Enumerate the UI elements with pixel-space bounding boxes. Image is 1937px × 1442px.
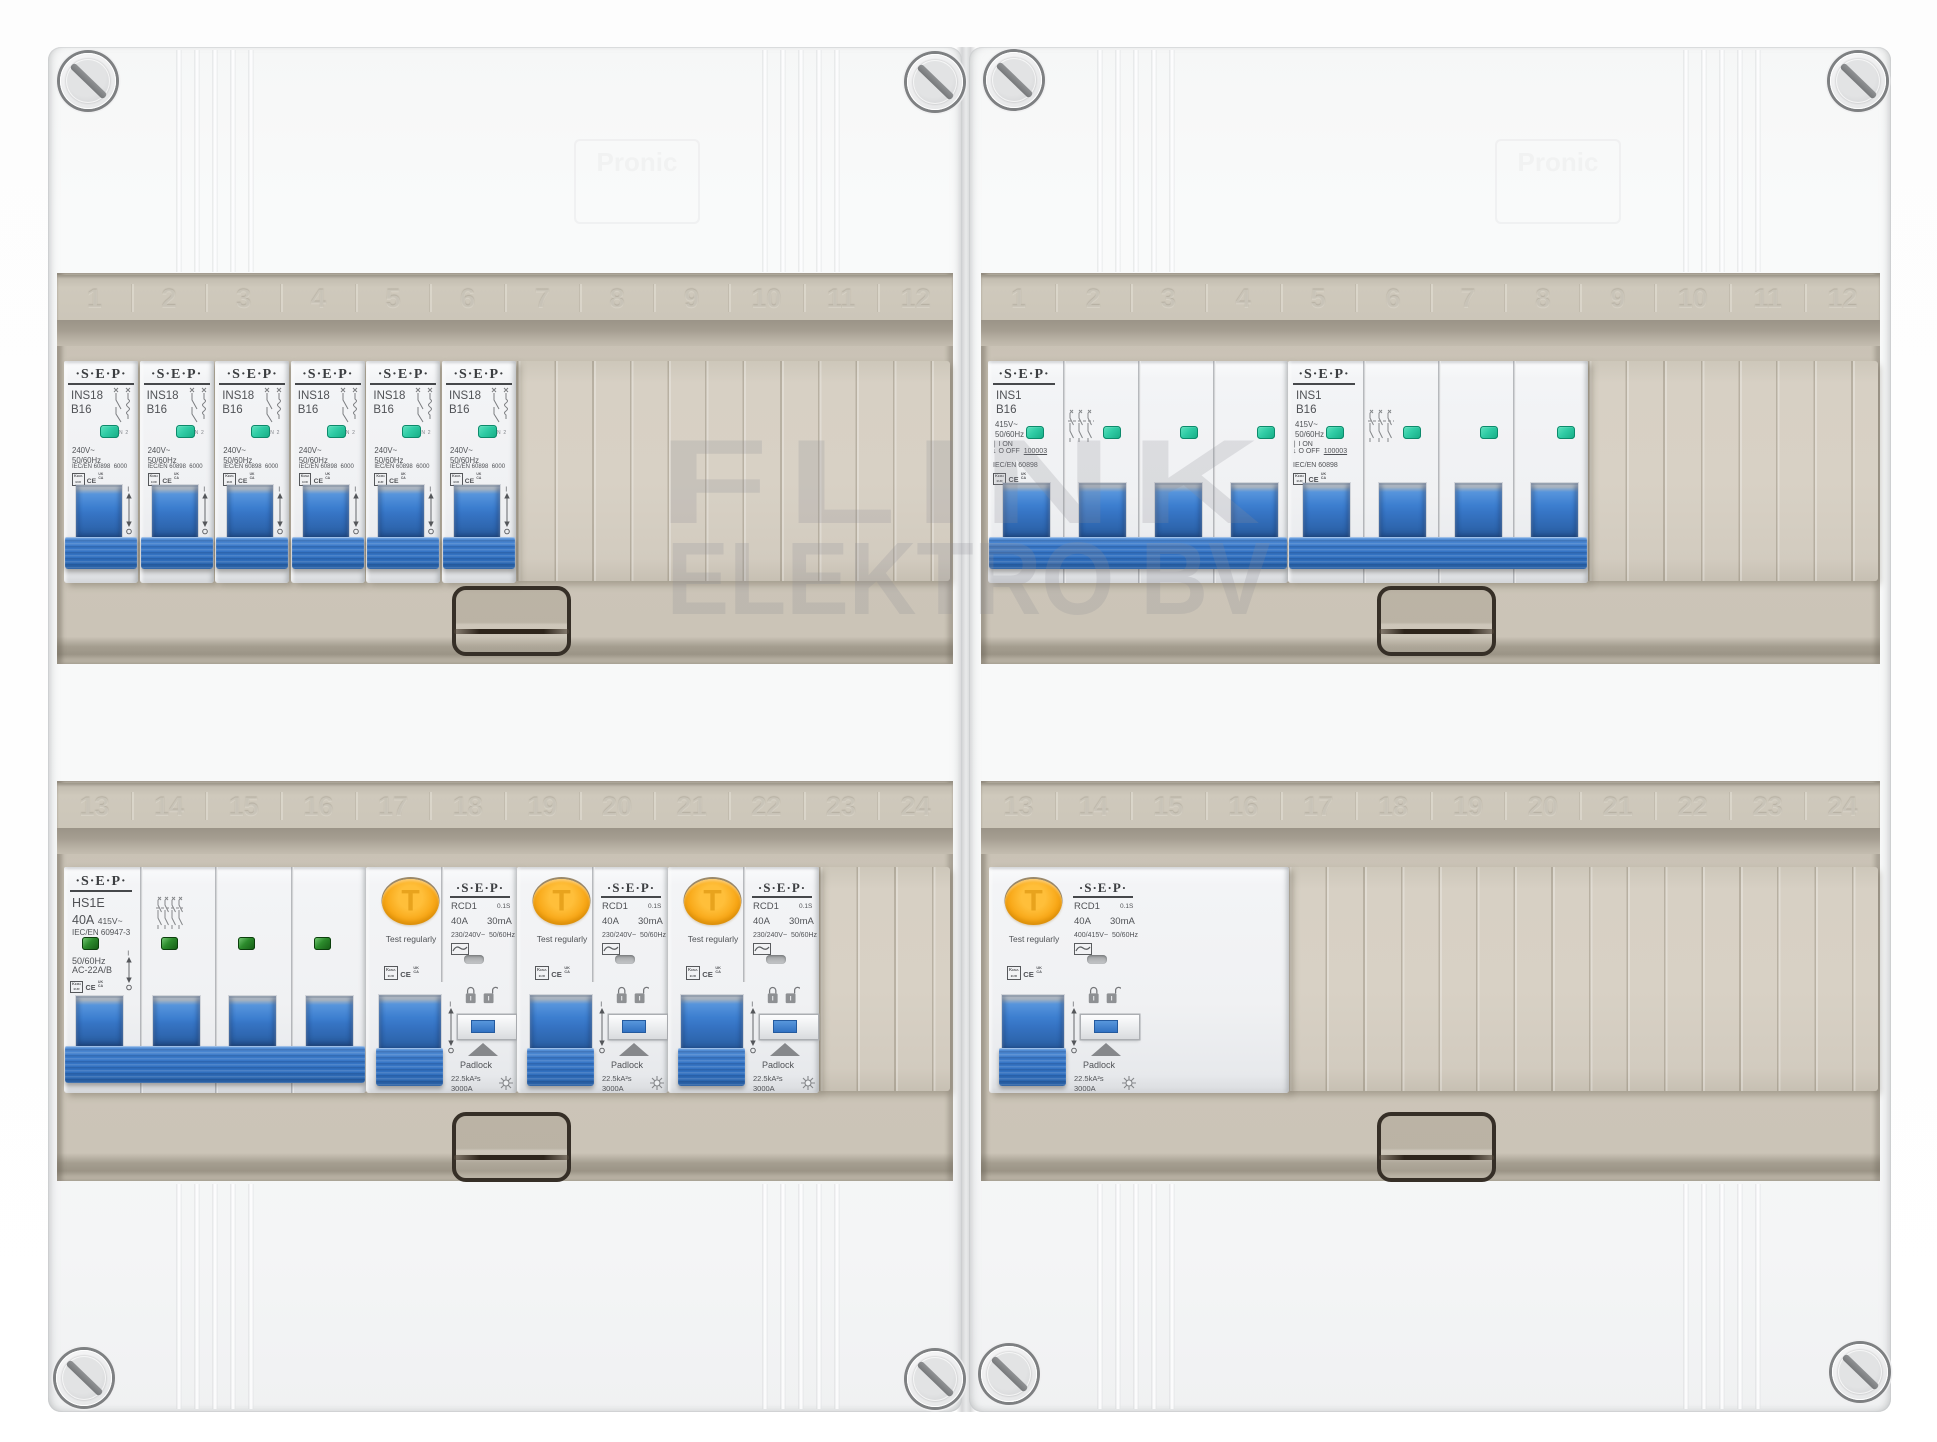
svg-text:I: I (1072, 1002, 1074, 1009)
svg-text:I: I (449, 1002, 451, 1009)
svg-text:I: I (751, 1002, 753, 1009)
svg-text:I: I (127, 951, 129, 958)
svg-text:I: I (600, 1002, 602, 1009)
